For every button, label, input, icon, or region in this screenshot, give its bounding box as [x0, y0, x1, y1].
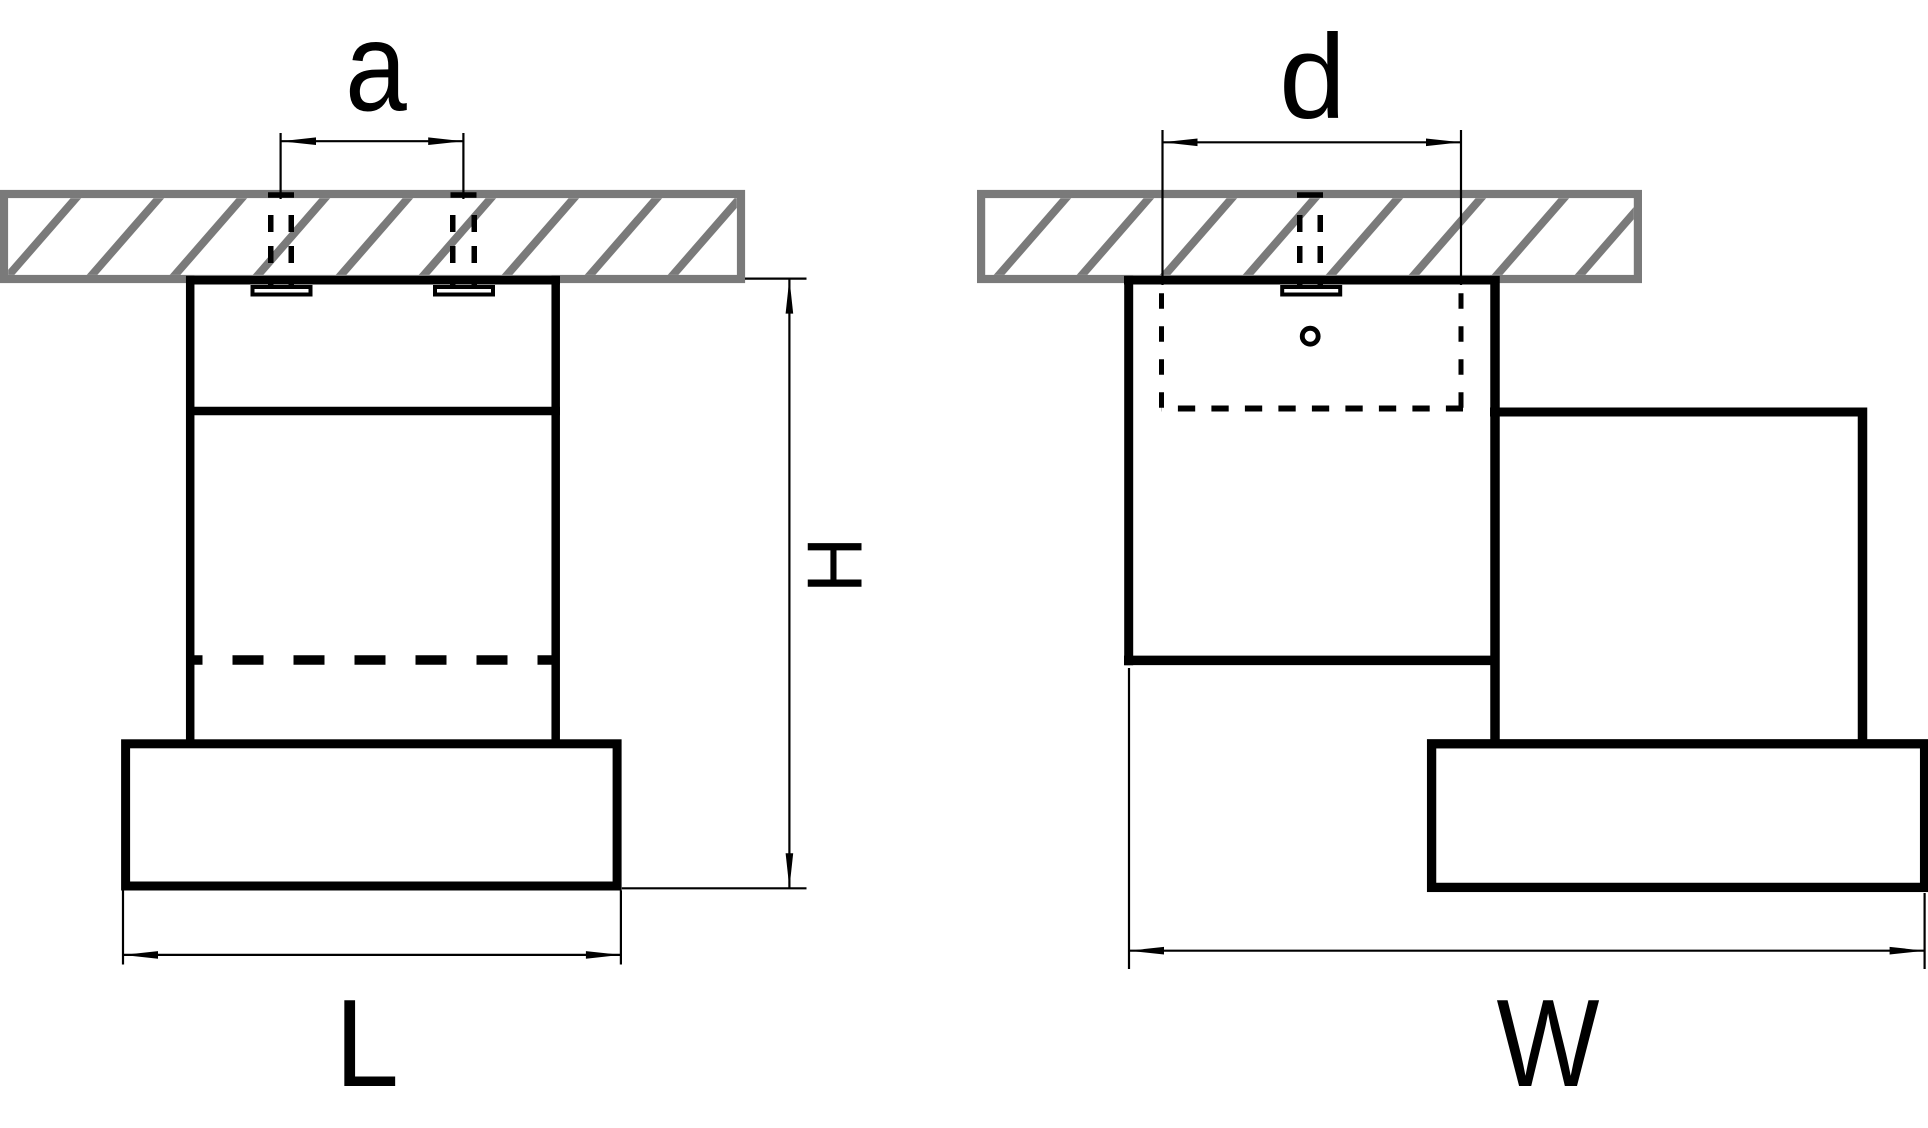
- svg-text:H: H: [791, 537, 879, 593]
- svg-text:a: a: [345, 0, 407, 138]
- svg-text:L: L: [335, 975, 399, 1113]
- svg-text:d: d: [1279, 10, 1346, 144]
- svg-text:W: W: [1497, 973, 1600, 1112]
